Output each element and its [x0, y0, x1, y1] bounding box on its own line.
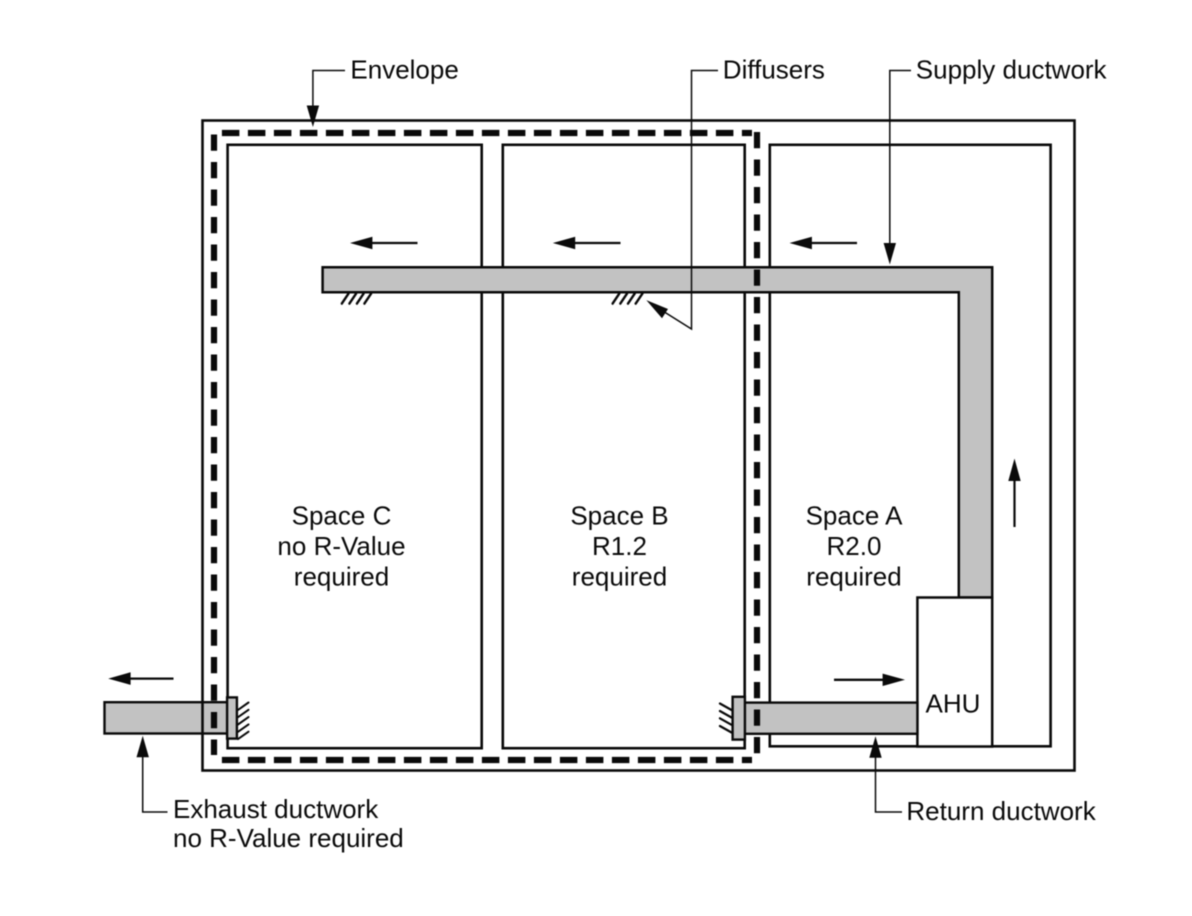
svg-text:Space A: Space A — [806, 500, 904, 530]
svg-text:required: required — [806, 561, 901, 591]
svg-text:no R-Value required: no R-Value required — [173, 823, 404, 853]
svg-text:required: required — [294, 561, 389, 591]
svg-text:Exhaust ductwork: Exhaust ductwork — [173, 794, 379, 824]
svg-text:Space C: Space C — [292, 500, 392, 530]
svg-text:required: required — [572, 561, 667, 591]
svg-text:R1.2: R1.2 — [592, 531, 647, 561]
svg-text:Supply ductwork: Supply ductwork — [916, 54, 1108, 84]
svg-text:Envelope: Envelope — [350, 54, 458, 84]
svg-text:Return ductwork: Return ductwork — [906, 796, 1096, 826]
svg-text:no R-Value: no R-Value — [277, 531, 405, 561]
svg-text:Diffusers: Diffusers — [723, 54, 825, 84]
svg-text:AHU: AHU — [926, 689, 981, 719]
svg-text:Space B: Space B — [570, 500, 668, 530]
svg-text:R2.0: R2.0 — [827, 531, 882, 561]
